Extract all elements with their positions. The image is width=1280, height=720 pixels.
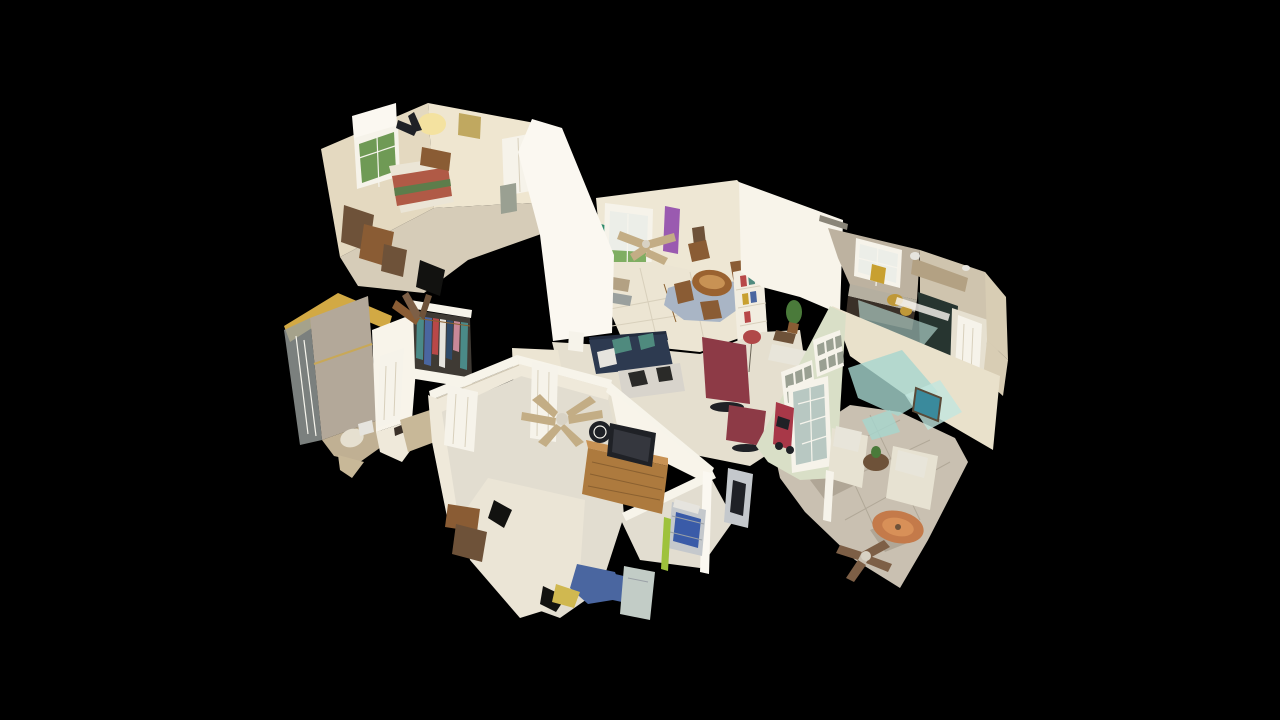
- shower-travertine-wall: [310, 296, 378, 440]
- hanging-clothes: [460, 322, 468, 370]
- cowhide-patch: [656, 366, 673, 382]
- hanging-clothes: [446, 320, 453, 360]
- hanging-clothes: [432, 318, 439, 355]
- hall-door: [377, 348, 404, 428]
- plant-pot: [787, 322, 799, 334]
- scooter-wheel: [775, 442, 783, 450]
- sunroom-fan-hub: [861, 551, 871, 561]
- cabinet-light: [910, 252, 920, 260]
- dollhouse-3d-view: [0, 0, 1280, 720]
- books: [744, 311, 751, 323]
- master-fan-hub: [556, 413, 568, 425]
- books: [740, 275, 747, 287]
- houseplant: [786, 300, 802, 324]
- master-door: [444, 385, 478, 452]
- dining-chair: [688, 240, 710, 262]
- recliner-base: [732, 444, 760, 452]
- scooter-wheel: [786, 446, 794, 454]
- books: [750, 291, 757, 303]
- entry-fan-hub: [642, 240, 650, 248]
- lamp-glow: [418, 113, 446, 135]
- gold-picture: [458, 113, 481, 139]
- books: [742, 293, 749, 305]
- hanging-clothes: [439, 319, 446, 368]
- hall-door-top: [568, 331, 584, 352]
- viewer-canvas[interactable]: [0, 0, 1280, 720]
- round-speaker: [589, 421, 611, 443]
- rug-center: [895, 524, 901, 530]
- purple-wall-art: [663, 206, 680, 254]
- shower-chair: [620, 566, 655, 620]
- mirror-glimpse: [500, 183, 517, 214]
- hanging-clothes: [453, 321, 460, 352]
- cabinet-light: [962, 265, 970, 271]
- hanging-clothes: [424, 317, 432, 366]
- red-lamp-shade: [743, 330, 761, 344]
- table-plant: [871, 446, 881, 458]
- burgundy-recliner: [702, 337, 750, 404]
